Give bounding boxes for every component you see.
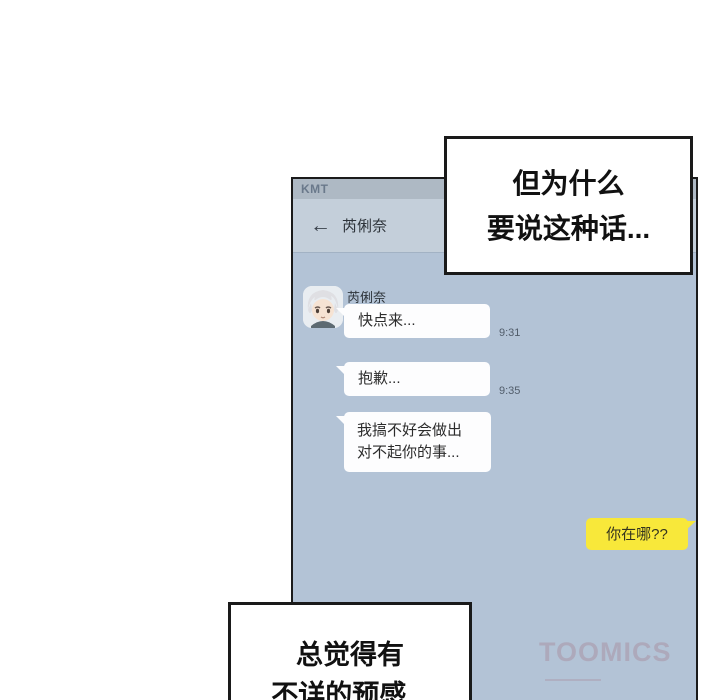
carrier-label: KMT: [301, 182, 329, 196]
message-text-line2: 对不起你的事...: [357, 442, 478, 464]
chat-title: 芮俐奈: [342, 215, 387, 236]
message-text: 抱歉...: [358, 370, 401, 387]
message-text-line1: 我搞不好会做出: [357, 420, 478, 442]
contact-avatar[interactable]: [303, 286, 343, 328]
comic-panel: KMT ← 芮俐奈: [0, 0, 720, 700]
speech-bubble-top: 但为什么 要说这种话...: [444, 136, 693, 275]
speech-line1: 总觉得有: [296, 635, 404, 675]
message-timestamp: 9:35: [499, 385, 520, 397]
message-bubble-outgoing: 你在哪??: [586, 518, 688, 550]
message-text: 你在哪??: [606, 526, 668, 543]
speech-line2: 不详的预感...: [271, 675, 429, 700]
message-bubble: 抱歉...: [344, 362, 490, 396]
toomics-watermark: TOOMICS: [539, 637, 672, 668]
speech-line1: 但为什么: [512, 161, 624, 206]
speech-line2: 要说这种话...: [487, 206, 650, 251]
avatar-image: [303, 286, 343, 328]
message-bubble: 我搞不好会做出 对不起你的事...: [344, 412, 491, 472]
back-arrow-icon[interactable]: ←: [310, 215, 331, 236]
message-bubble: 快点来...: [344, 304, 490, 338]
message-timestamp: 9:31: [499, 327, 520, 339]
message-text: 快点来...: [358, 312, 416, 329]
speech-bubble-bottom: 总觉得有 不详的预感...: [228, 602, 472, 700]
watermark-underline: [545, 679, 601, 681]
